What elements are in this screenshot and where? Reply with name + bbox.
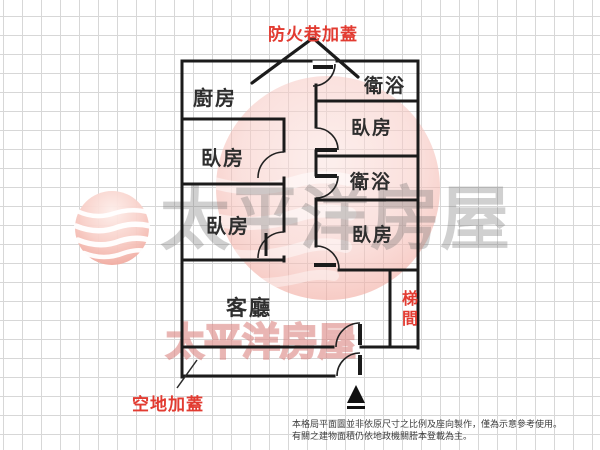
room-label-bathroom-middle: 衛浴 <box>350 167 392 194</box>
disclaimer-line-2: 有關之建物面積仍依地政機關謄本登載為主。 <box>292 430 592 442</box>
room-label-bedroom-left-middle: 臥房 <box>201 142 245 171</box>
room-label-stairwell: 梯間 <box>395 290 419 330</box>
annotation-fire-lane: 防火巷加蓋 <box>268 20 358 45</box>
room-label-bedroom-right-top: 臥房 <box>351 113 393 140</box>
room-label-bedroom-right-bottom: 臥房 <box>352 220 394 247</box>
room-label-bathroom-top: 衛浴 <box>364 71 406 98</box>
disclaimer-text: 本格局平面圖並非依原尺寸之比例及座向製作，僅為示意參考使用。 有關之建物面積仍依… <box>292 418 592 442</box>
floorplan-drawing <box>0 0 600 450</box>
room-label-bedroom-left-bottom: 臥房 <box>206 210 250 239</box>
annotation-vacant-lot: 空地加蓋 <box>132 390 204 415</box>
door-arcs <box>258 64 360 376</box>
pointer-line <box>177 360 197 388</box>
disclaimer-line-1: 本格局平面圖並非依原尺寸之比例及座向製作，僅為示意參考使用。 <box>292 418 592 430</box>
entrance-arrow-icon <box>347 385 365 409</box>
door-leaves <box>266 67 360 375</box>
floorplan-image: 太平洋房屋 太平洋房屋 <box>0 0 600 450</box>
room-label-living-room: 客廳 <box>226 292 272 322</box>
room-label-kitchen: 廚房 <box>193 82 237 111</box>
